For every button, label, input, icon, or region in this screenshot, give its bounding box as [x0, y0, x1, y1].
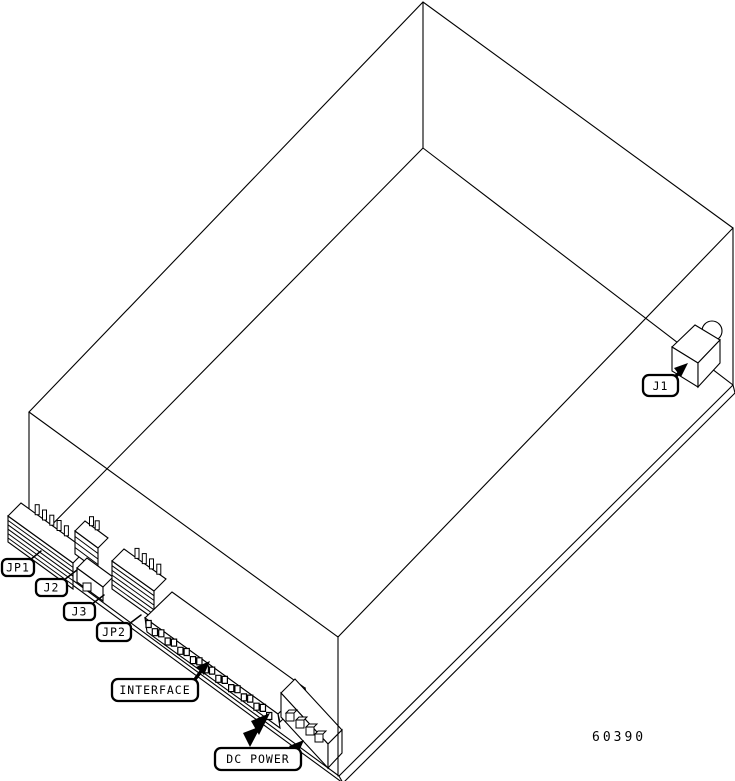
interface-label: INTERFACE [119, 683, 190, 697]
base-front-right-edge-lower [343, 393, 735, 781]
pin [286, 713, 294, 721]
connector-j1 [672, 321, 722, 387]
pin [43, 510, 47, 520]
pin [90, 517, 94, 526]
pin1-indicator-icon [243, 713, 270, 747]
chassis-diagram: JP1 J2 J3 JP2 INTERFACE DC POWER J1 6039… [0, 0, 735, 781]
base-front-left-edge [29, 548, 339, 776]
pin [296, 720, 304, 728]
j3-label: J3 [72, 605, 88, 619]
pin [57, 521, 61, 531]
pin [306, 727, 314, 735]
chassis-top-rim [29, 2, 733, 637]
pin [157, 564, 161, 574]
chassis-front-edges [338, 385, 735, 781]
connector-j3 [77, 558, 113, 601]
pin [50, 515, 54, 525]
j2-label: J2 [44, 581, 60, 595]
pin [135, 548, 139, 558]
pin [142, 554, 146, 564]
dc-power-label: DC POWER [226, 752, 289, 766]
callout-j1: J1 [643, 363, 688, 396]
chassis-hidden-bottom-left-edge [29, 148, 423, 548]
base-front-right-edge [339, 385, 733, 776]
indicator-triangle-icon [243, 726, 261, 747]
chassis-rear-edges [29, 2, 733, 781]
callout-j3: J3 [64, 595, 104, 620]
pin [150, 559, 154, 569]
figure-number: 60390 [592, 730, 646, 745]
jp2-leader-line [129, 615, 141, 624]
pin [95, 521, 99, 530]
pin [315, 734, 323, 742]
j3-key-block [83, 583, 91, 591]
pin [35, 505, 39, 515]
diagram-canvas: JP1 J2 J3 JP2 INTERFACE DC POWER J1 6039… [0, 0, 735, 781]
pin [64, 526, 68, 536]
jp1-label: JP1 [6, 561, 30, 575]
j1-label: J1 [653, 379, 669, 393]
jp2-label: JP2 [102, 625, 126, 639]
